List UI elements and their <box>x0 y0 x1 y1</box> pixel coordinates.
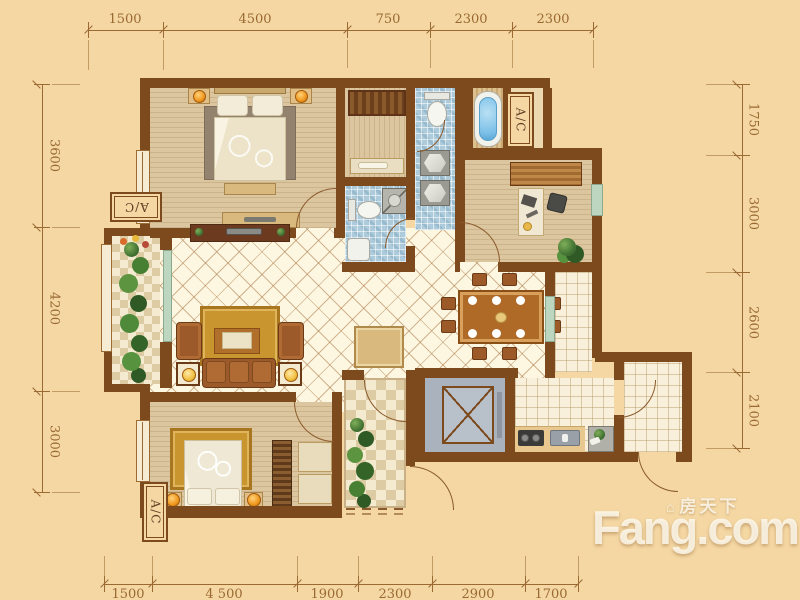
dim-tick <box>593 22 594 38</box>
dim-witness <box>52 492 80 493</box>
fang-watermark: ⌂房天下 Fang.com <box>592 492 798 560</box>
wall <box>614 415 624 452</box>
dim-label-bottom: 4 500 <box>192 587 256 600</box>
bedroom2-pillow <box>187 488 212 505</box>
dim-label-right: 3000 <box>746 182 761 246</box>
wall <box>334 228 345 238</box>
dimension-line-bottom <box>104 584 578 585</box>
closet-wardrobe <box>348 90 406 116</box>
dimension-line-left <box>42 84 43 492</box>
dim-tick <box>163 22 164 38</box>
ac-label: A/C <box>513 108 527 133</box>
table-centerpiece <box>495 312 507 323</box>
wall <box>336 88 345 228</box>
corridor-sliding-door <box>545 296 555 342</box>
table-lamp <box>166 493 180 507</box>
wall <box>505 378 515 462</box>
wall <box>415 368 518 378</box>
wall <box>543 88 552 148</box>
dining-chair <box>502 273 517 286</box>
wall <box>622 452 638 462</box>
dining-chair <box>441 297 456 310</box>
toilet-bowl <box>357 201 381 219</box>
dim-witness <box>297 556 298 576</box>
wall <box>465 88 473 148</box>
dim-witness <box>706 155 734 156</box>
bedroom2-pillow <box>215 488 240 505</box>
bedroom2-wardrobe <box>272 440 292 508</box>
ac-platform: A/C <box>142 482 168 542</box>
bedroom2-window <box>136 420 150 482</box>
foyer-plants <box>350 418 364 432</box>
master-bed-duvet <box>214 117 286 181</box>
wall <box>592 216 602 272</box>
wall <box>406 186 415 220</box>
dining-chair <box>502 347 517 360</box>
sofa-cushion <box>206 361 226 383</box>
dim-tick <box>34 492 50 493</box>
stove-burner <box>532 434 540 442</box>
decor-plant <box>277 228 285 236</box>
wall <box>614 362 624 380</box>
dim-tick <box>430 22 431 38</box>
floorplan-canvas: 1500 4500 750 2300 2300 1500 4 500 1900 … <box>0 0 800 600</box>
dim-witness <box>706 448 734 449</box>
dim-witness <box>593 40 594 68</box>
fang-watermark-brand: Fang.com <box>592 500 798 555</box>
wall <box>150 392 296 402</box>
study-window <box>591 184 603 216</box>
dim-tick <box>347 22 348 38</box>
place-settings <box>468 296 477 305</box>
bathtub-water <box>479 97 497 141</box>
balcony-window <box>101 244 112 352</box>
wall <box>345 177 406 186</box>
master-dresser-tv <box>244 217 276 222</box>
wall <box>342 262 415 272</box>
dining-chair <box>472 273 487 286</box>
balcony-plants <box>124 242 139 257</box>
dim-label-bottom: 2300 <box>363 587 427 600</box>
dimension-line-right <box>742 84 743 448</box>
dim-witness <box>104 556 105 576</box>
master-bed-pillow <box>217 95 248 116</box>
wall <box>463 148 602 160</box>
balcony-sliding-door <box>163 250 172 342</box>
dim-label-top: 4500 <box>223 12 287 27</box>
floor-lamp <box>284 368 298 382</box>
dim-label-bottom: 1500 <box>96 587 160 600</box>
balcony-floor <box>112 236 160 384</box>
sofa-cushion <box>252 361 272 383</box>
television <box>226 228 262 235</box>
study-plant <box>558 238 576 256</box>
dim-label-bottom: 1700 <box>519 587 583 600</box>
ac-label: A/C <box>124 200 149 214</box>
wall <box>455 262 460 272</box>
floor-lamp <box>182 368 196 382</box>
bedroom2-cabinet <box>298 442 332 472</box>
stove-burner <box>521 434 529 442</box>
entrance-threshold <box>346 508 406 510</box>
table-lamp <box>247 493 261 507</box>
dim-tick <box>512 22 513 38</box>
dim-witness <box>52 227 80 228</box>
dim-witness <box>52 391 80 392</box>
dim-tick <box>88 22 89 38</box>
wall <box>498 262 602 272</box>
dim-witness <box>578 556 579 576</box>
dim-label-right: 2100 <box>746 379 761 443</box>
dim-label-top: 2300 <box>439 12 503 27</box>
entry-mat <box>354 326 404 368</box>
dim-witness <box>163 40 164 70</box>
dim-label-left: 3600 <box>47 124 62 188</box>
dim-witness <box>525 556 526 576</box>
wash-basin <box>420 150 450 176</box>
study-wardrobe <box>510 162 582 186</box>
window-mullion <box>142 422 143 480</box>
desk-clock <box>523 222 532 231</box>
dim-witness <box>88 40 89 70</box>
wall <box>682 352 692 462</box>
dim-tick <box>432 576 433 592</box>
bath2-tub <box>347 238 370 261</box>
balcony-flowers <box>120 238 127 245</box>
dim-label-left: 4200 <box>47 277 62 341</box>
wall <box>545 272 555 298</box>
wash-basin <box>420 180 450 206</box>
armchair <box>176 322 202 360</box>
wall <box>592 272 602 358</box>
wall <box>676 452 692 462</box>
wall <box>406 378 415 466</box>
dim-witness <box>512 40 513 68</box>
dim-tick <box>734 155 750 156</box>
dim-witness <box>347 40 348 68</box>
wall <box>595 352 690 362</box>
wall <box>140 384 150 422</box>
dim-witness <box>430 40 431 68</box>
wall <box>160 342 172 388</box>
toilet-tank <box>424 92 450 100</box>
dim-tick <box>34 84 50 85</box>
dim-witness <box>358 556 359 576</box>
wall <box>140 506 342 518</box>
table-lamp <box>193 90 206 103</box>
decor-plant <box>195 228 203 236</box>
wall <box>342 370 364 380</box>
dining-chair <box>441 320 456 333</box>
dim-witness <box>52 84 80 85</box>
ac-platform: A/C <box>110 192 162 222</box>
dim-label-top: 1500 <box>93 12 157 27</box>
dim-tick <box>34 227 50 228</box>
wall <box>140 78 550 88</box>
dim-tick <box>734 84 750 85</box>
wall <box>415 452 622 462</box>
dim-witness <box>706 372 734 373</box>
dim-label-top: 2300 <box>521 12 585 27</box>
wall <box>406 88 415 186</box>
dim-label-bottom: 1900 <box>295 587 359 600</box>
dim-label-bottom: 2900 <box>446 587 510 600</box>
shower-drain <box>388 194 401 207</box>
sink-faucet <box>562 434 568 442</box>
dim-witness <box>706 84 734 85</box>
wall <box>592 148 602 184</box>
coffee-table-tray <box>222 332 252 349</box>
dim-label-right: 2600 <box>746 291 761 355</box>
bedroom2-cabinet <box>298 474 332 504</box>
elevator-cab <box>442 386 494 444</box>
dining-chair <box>472 347 487 360</box>
armchair <box>278 322 304 360</box>
wall <box>545 342 555 378</box>
dim-tick <box>34 391 50 392</box>
ac-platform: A/C <box>506 92 534 148</box>
service-door-arc <box>638 452 678 492</box>
dim-label-top: 750 <box>356 12 420 27</box>
entrance-door-arc <box>410 466 454 510</box>
wall <box>415 368 425 462</box>
dim-tick <box>734 372 750 373</box>
entrance-threshold <box>346 513 406 515</box>
dim-label-left: 3000 <box>47 410 62 474</box>
dim-tick <box>734 448 750 449</box>
dim-witness <box>432 556 433 576</box>
dim-witness <box>706 272 734 273</box>
master-bed-bench <box>224 183 276 195</box>
dim-label-right: 1750 <box>746 88 761 152</box>
wall <box>406 246 415 262</box>
dressing-table-sink <box>358 162 388 169</box>
table-lamp <box>295 90 308 103</box>
master-bed-pillow <box>252 95 283 116</box>
elevator-rail <box>497 392 502 438</box>
dim-witness <box>152 556 153 576</box>
toilet-tank <box>348 199 356 221</box>
wall <box>140 88 150 150</box>
ac-label: A/C <box>148 500 162 525</box>
dim-tick <box>734 272 750 273</box>
sofa-cushion <box>229 361 249 383</box>
